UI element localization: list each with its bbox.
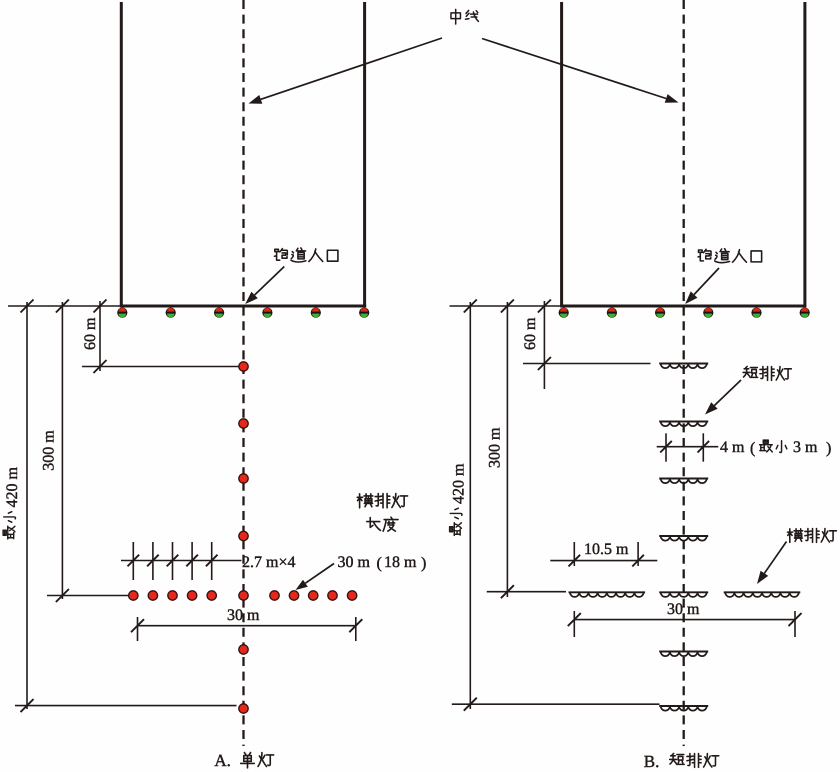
svg-text:4 m: 4 m [720,439,745,456]
svg-text:(: ( [750,440,755,457]
svg-text:2.7 m×4: 2.7 m×4 [242,554,295,571]
svg-text:10.5 m: 10.5 m [584,541,629,558]
svg-text:300 m: 300 m [41,430,58,471]
svg-text:): ) [421,555,426,572]
svg-text:A.: A. [214,751,231,770]
svg-text:60 m: 60 m [522,317,539,350]
svg-text:420 m: 420 m [451,463,468,504]
svg-text:60 m: 60 m [82,317,99,350]
svg-text:B.: B. [644,752,660,771]
svg-text:): ) [826,440,831,457]
svg-text:30 m: 30 m [227,607,260,624]
svg-text:30 m: 30 m [338,554,371,571]
svg-text:30 m: 30 m [667,601,700,618]
svg-text:300 m: 300 m [487,427,504,468]
svg-text:(: ( [377,555,382,572]
svg-text:18 m: 18 m [384,554,417,571]
svg-text:420 m: 420 m [4,467,21,508]
svg-text:3 m: 3 m [793,439,818,456]
